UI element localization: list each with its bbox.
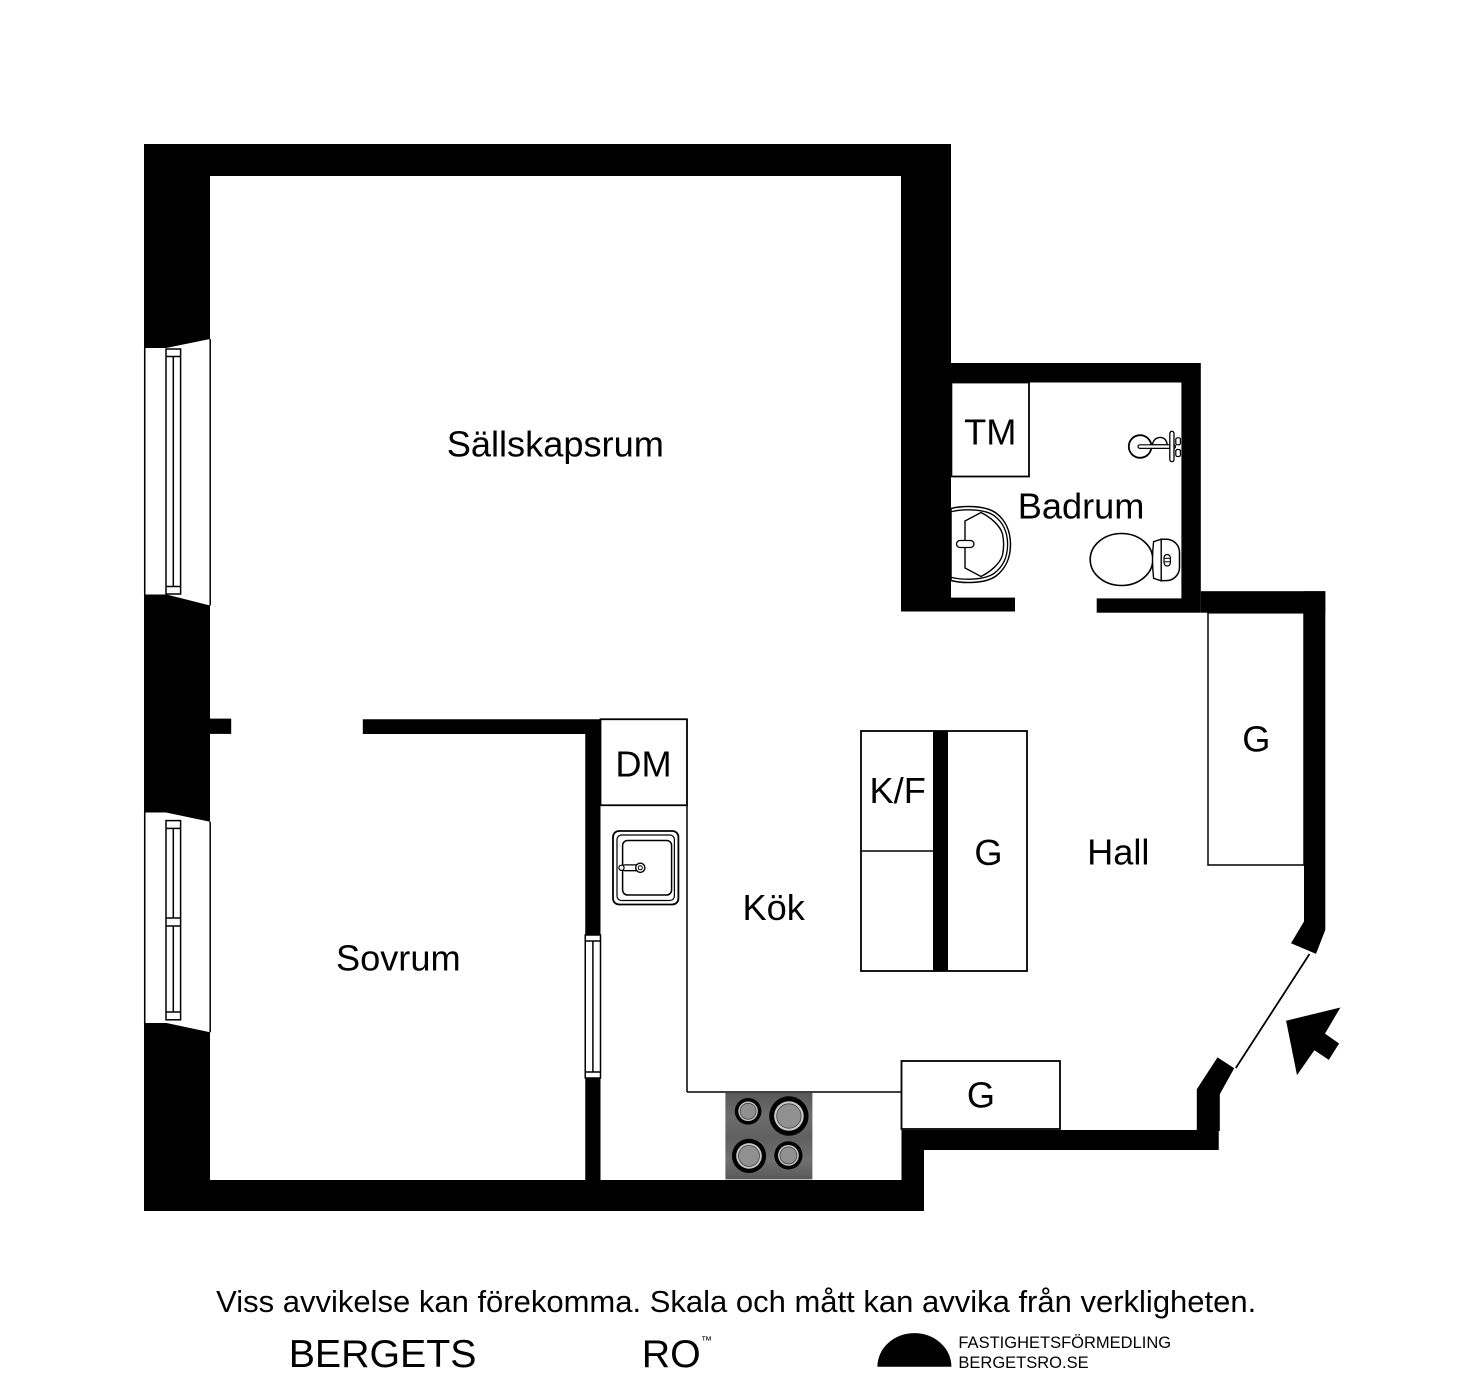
svg-text:Hall: Hall [1087,831,1149,872]
svg-text:K/F: K/F [870,770,926,811]
svg-text:FASTIGHETSFÖRMEDLING: FASTIGHETSFÖRMEDLING [958,1334,1171,1352]
svg-text:RO: RO [642,1332,701,1376]
svg-text:Sällskapsrum: Sällskapsrum [447,423,664,464]
svg-text:G: G [974,832,1002,873]
svg-text:Viss avvikelse kan förekomma.: Viss avvikelse kan förekomma. Skala och … [216,1284,1256,1319]
svg-text:DM: DM [615,743,671,784]
svg-text:™: ™ [701,1335,712,1347]
svg-text:G: G [1242,718,1270,759]
svg-text:Sovrum: Sovrum [336,938,461,979]
svg-text:Kök: Kök [742,887,805,928]
svg-text:Badrum: Badrum [1018,486,1145,527]
svg-text:TM: TM [964,411,1016,452]
svg-text:BERGETSRO.SE: BERGETSRO.SE [958,1354,1088,1372]
svg-text:G: G [967,1075,995,1116]
svg-text:BERGETS: BERGETS [289,1332,477,1376]
